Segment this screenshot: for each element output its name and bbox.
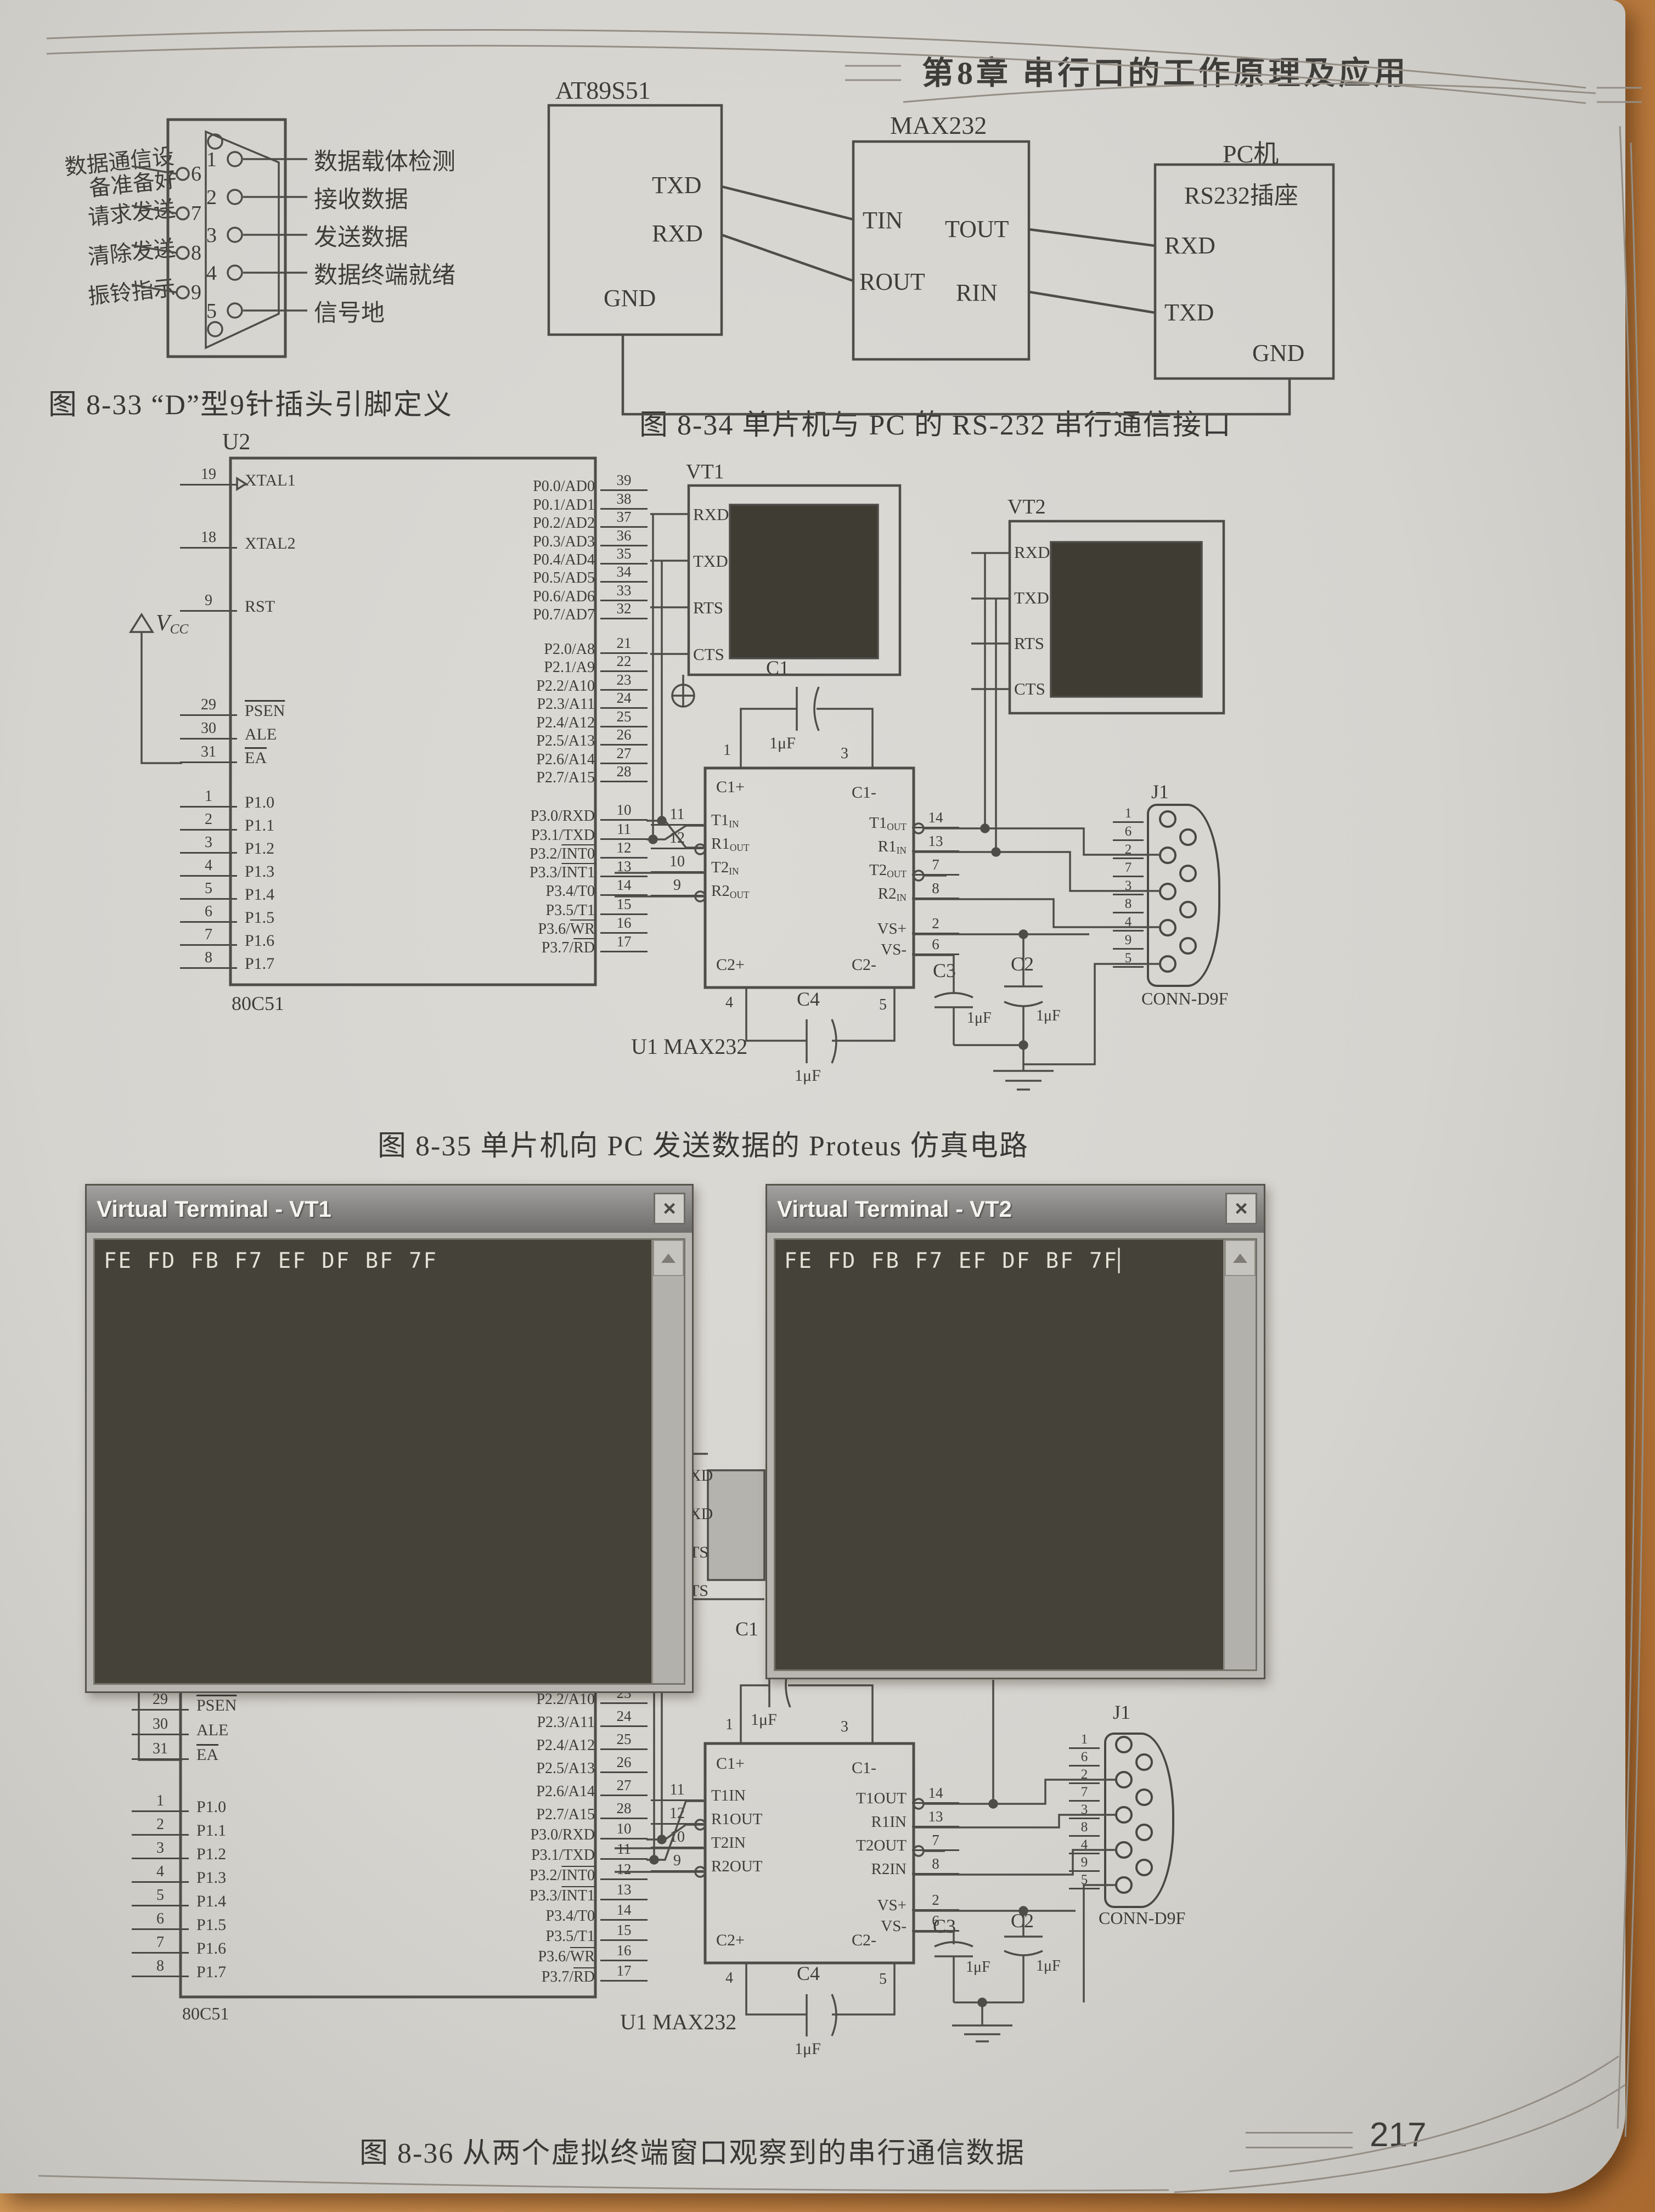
pin-row: 29PSEN [180, 692, 378, 716]
pin-row: P0.0/AD039 [370, 473, 648, 491]
db9-pin-number: 3 [206, 216, 217, 254]
j1-pin-hole [1115, 1736, 1133, 1753]
pin-row: P0.6/AD633 [370, 583, 648, 601]
c2-value: 1μF [1036, 1007, 1061, 1025]
pin-row: P0.1/AD138 [370, 491, 648, 509]
j1-pin-hole [1179, 901, 1197, 918]
vt1-window: Virtual Terminal - VT1 × FE FD FB F7 EF … [85, 1184, 694, 1693]
vt1-terminal-text: FE FD FB F7 EF DF BF 7F [104, 1249, 438, 1273]
terminal-pin: CTS [693, 631, 729, 678]
pin-row: 8P1.7 [180, 946, 378, 969]
vt2-close-button[interactable]: × [1225, 1193, 1257, 1224]
pin-row: P3.2/INT012 [370, 1860, 648, 1880]
terminal-pin: TXD [693, 538, 729, 584]
db9-pin-number: 5 [206, 292, 217, 330]
vt1-ref: VT1 [686, 460, 724, 484]
j1-pin-hole [1159, 810, 1176, 828]
pin-row: 19XTAL1 [180, 422, 378, 486]
pin-row: P3.3/INT113 [370, 1880, 648, 1900]
pin-row: VS-6 [768, 934, 959, 955]
pc-txd-pin: TXD [1164, 298, 1214, 326]
pin-row: P3.7/RD17 [370, 1961, 648, 1982]
vt1-scrollbar[interactable] [651, 1240, 684, 1683]
terminal-pin: RXD [1014, 529, 1050, 575]
db9-right-label-row: 接收数据 [314, 178, 455, 216]
pin-row: 9R2OUT [651, 873, 788, 896]
pin-row: P2.2/A1023 [370, 672, 648, 691]
vt2-terminal-cursor: ▏ [1118, 1249, 1133, 1273]
pin-row: P3.4/T014 [370, 1900, 648, 1921]
fig836-caption: 图 8-36 从两个虚拟终端窗口观察到的串行通信数据 [359, 2130, 1025, 2171]
pin-row: 5P1.4 [132, 1883, 329, 1906]
u1-ref: U1 MAX232 [631, 1034, 747, 1059]
chip2-p2-pins: P2.2/A1023P2.3/A1124P2.4/A1225P2.5/A1326… [370, 1681, 648, 1819]
c3-ref: C3 [933, 959, 956, 982]
pin-row: 10T2IN [651, 1825, 788, 1848]
pin-row: P0.4/AD435 [370, 546, 648, 565]
pin-row: P3.7/RD17 [370, 934, 648, 952]
chip2-part: 80C51 [182, 2004, 229, 2024]
c1b-pin1: 1 [725, 1716, 733, 1734]
u2-p1-pins: 1P1.02P1.13P1.24P1.35P1.46P1.57P1.68P1.7 [180, 785, 378, 969]
pin-row: P2.7/A1528 [370, 764, 648, 783]
j1-pins: 162738495 [1113, 810, 1197, 973]
pin-row: P0.2/AD237 [370, 510, 648, 528]
max232-rout-pin: ROUT [859, 268, 925, 296]
vt2-terminal-screen[interactable]: FE FD FB F7 EF DF BF 7F▏ [775, 1240, 1223, 1669]
pin-row: 1P1.0 [180, 785, 378, 808]
pin-row: 31EA [132, 1735, 329, 1760]
u2-topleft-pins: 19XTAL118XTAL29RST [180, 422, 378, 612]
u1b-c2minus: C2- [852, 1931, 876, 1950]
pin-row: P3.6/WR16 [370, 915, 648, 934]
db9-left-label-row: 清除发送 [11, 233, 176, 273]
u1-c1plus: C1+ [716, 778, 745, 797]
chip2-p3-pins: P3.0/RXD10P3.1/TXD11P3.2/INT012P3.3/INT1… [370, 1819, 648, 1982]
fig833-caption: 图 8-33 “D”型9针插头引脚定义 [48, 381, 453, 422]
u1b-vs-pins: VS+2VS-6 [768, 1890, 959, 1932]
u1b-c1plus: C1+ [716, 1754, 745, 1773]
vt1-scroll-up-arrow[interactable] [653, 1240, 684, 1276]
pin-row: P2.3/A1124 [370, 1704, 648, 1727]
c1-value: 1μF [769, 734, 796, 753]
j1b-part: CONN-D9F [1099, 1908, 1185, 1928]
pin-row: P3.1/TXD11 [370, 1839, 648, 1860]
db9-pin-number: 2 [206, 178, 217, 216]
c2b-value: 1μF [1036, 1957, 1061, 1975]
j1-pin-hole [1115, 1771, 1133, 1788]
db9-right-labels: 数据载体检测接收数据发送数据数据终端就绪信号地 [314, 140, 455, 330]
pin-row: 11T1IN [651, 802, 788, 826]
vt2-scroll-up-arrow[interactable] [1225, 1240, 1256, 1276]
c4b-value: 1μF [795, 2040, 821, 2058]
db9-left-label-row: 振铃指示 [11, 273, 176, 312]
pin-row: R1IN13 [768, 828, 959, 852]
pin-row: 10T2IN [651, 849, 788, 873]
pin-row: P2.4/A1225 [370, 709, 648, 727]
c4b-ref: C4 [797, 1962, 820, 1985]
book-page: 第8章 串行口的工作原理及应用 数据通信设备准备好请求发送清除发送振铃指示 67… [0, 0, 1625, 2193]
db9-pin-number: 4 [206, 254, 217, 292]
vt2-terminal-text: FE FD FB F7 EF DF BF 7F [784, 1249, 1118, 1273]
c4-value: 1μF [795, 1066, 821, 1085]
pin-row: T2OUT7 [768, 1827, 959, 1851]
pin-row: 8P1.7 [132, 1954, 329, 1977]
pin-row: 3P1.2 [132, 1836, 329, 1859]
c1b-value: 1μF [751, 1711, 777, 1729]
vt2-pins: RXDTXDRTSCTS [1014, 529, 1050, 712]
vt2-titlebar[interactable]: Virtual Terminal - VT2 × [767, 1186, 1264, 1233]
c1b-pin3: 3 [841, 1718, 848, 1736]
u2-p3-pins: P3.0/RXD10P3.1/TXD11P3.2/INT012P3.3/INT1… [370, 802, 648, 952]
db9-pin-number: 8 [191, 233, 201, 273]
u1b-pin4: 4 [725, 1970, 733, 1987]
terminal-pin: TXD [1014, 575, 1050, 620]
c1-pin3: 3 [841, 745, 848, 763]
u1-left-pins: 11T1IN12R1OUT10T2IN9R2OUT [651, 802, 788, 896]
book-photo: 第8章 串行口的工作原理及应用 数据通信设备准备好请求发送清除发送振铃指示 67… [0, 0, 1655, 2212]
c2-ref: C2 [1011, 952, 1034, 975]
j1-pin-hole [1115, 1876, 1133, 1894]
j1-pin-hole [1159, 919, 1176, 936]
chapter-header: 第8章 串行口的工作原理及应用 [922, 47, 1409, 93]
pin-row: 3P1.2 [180, 831, 378, 854]
u1b-left-pins: 11T1IN12R1OUT10T2IN9R2OUT [651, 1778, 788, 1872]
u2-ctrl-pins: 29PSEN30ALE31EA [180, 692, 378, 763]
pin-row: P0.7/AD732 [370, 601, 648, 619]
max232-rin-pin: RIN [956, 279, 998, 307]
pin-row: 1P1.0 [132, 1788, 329, 1812]
j1-ref: J1 [1151, 780, 1169, 803]
j1-pin-hole [1115, 1841, 1133, 1859]
pin-row: P0.3/AD336 [370, 528, 648, 546]
u1b-ref: U1 MAX232 [620, 2009, 736, 2035]
db9-left-labels: 数据通信设备准备好请求发送清除发送振铃指示 [11, 154, 176, 312]
pin-row: T2OUT7 [768, 852, 959, 876]
terminal-pin: CTS [1014, 666, 1050, 712]
pin-row: P3.2/INT012 [370, 840, 648, 859]
c1-ref: C1 [766, 656, 789, 679]
db9-right-label-row: 发送数据 [314, 216, 455, 254]
pin-row: VS-6 [768, 1911, 959, 1932]
pc-rxd-pin: RXD [1164, 232, 1215, 259]
pin-row: P2.6/A1427 [370, 1773, 648, 1796]
vt2-scrollbar[interactable] [1223, 1240, 1256, 1669]
j1-pin-hole [1135, 1859, 1153, 1876]
u1-c1minus: C1- [852, 783, 876, 802]
pin-row: 5P1.4 [180, 877, 378, 900]
db9-left-numbers: 6789 [191, 154, 201, 312]
fig834-caption: 图 8-34 单片机与 PC 的 RS-232 串行通信接口 [639, 402, 1232, 443]
u1b-c1minus: C1- [852, 1759, 876, 1778]
j1-pin-hole [1135, 1824, 1153, 1841]
u2-part: 80C51 [232, 992, 284, 1015]
vt2-window: Virtual Terminal - VT2 × FE FD FB F7 EF … [765, 1184, 1265, 1679]
pin-row: 12R1OUT [651, 1801, 788, 1825]
pin-row: 7P1.6 [180, 923, 378, 946]
db9-right-label-row: 数据终端就绪 [314, 254, 455, 292]
j1-pin-row: 5 [1113, 955, 1197, 973]
pin-row: P2.5/A1326 [370, 1750, 648, 1773]
c3-value: 1μF [967, 1009, 992, 1027]
pin-row: P2.5/A1326 [370, 727, 648, 746]
pin-row: R1IN13 [768, 1804, 959, 1827]
pin-row: 4P1.3 [132, 1859, 329, 1883]
pin-row: P3.5/T115 [370, 1921, 648, 1941]
pin-row: 18XTAL2 [180, 486, 378, 549]
j1-pin-hole [1159, 955, 1176, 973]
chip2-p1-pins: 1P1.02P1.13P1.24P1.35P1.46P1.57P1.68P1.7 [132, 1788, 329, 1977]
pin-row: P3.1/TXD11 [370, 821, 648, 839]
pin-row: P3.3/INT113 [370, 859, 648, 877]
u1-vs-pins: VS+2VS-6 [768, 913, 959, 955]
pin-row: 31EA [180, 740, 378, 763]
pin-row: 30ALE [180, 716, 378, 740]
c4-ref: C4 [797, 988, 820, 1011]
vt1-titlebar[interactable]: Virtual Terminal - VT1 × [87, 1186, 692, 1233]
mcu-rxd-pin: RXD [652, 219, 703, 247]
j1-pin-row: 5 [1069, 1876, 1153, 1894]
c3b-ref: C3 [933, 1915, 956, 1938]
max232-box-title: MAX232 [890, 111, 987, 140]
pin-row: P2.1/A922 [370, 654, 648, 673]
page-number: 217 [1370, 2115, 1426, 2154]
pc-box-title: PC机 [1223, 134, 1279, 170]
pin-row: 4P1.3 [180, 854, 378, 877]
mcu-txd-pin: TXD [652, 171, 701, 199]
vt1-close-button[interactable]: × [654, 1193, 685, 1224]
j1-pin-hole [1135, 1753, 1153, 1771]
page-number-rule [1246, 2147, 1353, 2148]
j1-pin-hole [1115, 1806, 1133, 1824]
pin-row: 12R1OUT [651, 826, 788, 849]
pin-row: P3.0/RXD10 [370, 1819, 648, 1839]
pin-row: 6P1.5 [180, 900, 378, 923]
pin-row: R2IN8 [768, 1851, 959, 1875]
j1-pin-hole [1159, 847, 1176, 864]
pin-row: P3.5/T115 [370, 896, 648, 915]
pin-row: VS+2 [768, 913, 959, 934]
pin-row: P2.4/A1225 [370, 1727, 648, 1750]
chip2-ctrl-pins: 29PSEN30ALE31EA [132, 1686, 329, 1760]
pin-row: 11T1IN [651, 1778, 788, 1801]
terminal-pin: RXD [693, 491, 729, 538]
vt2-ref: VT2 [1007, 495, 1046, 519]
pin-row: P0.5/AD534 [370, 565, 648, 583]
pin-row: 9RST [180, 549, 378, 612]
mcu-gnd-pin: GND [604, 284, 656, 312]
pin-row: P2.0/A821 [370, 635, 648, 654]
pin-row: T1OUT14 [768, 1780, 959, 1804]
pin-row: P2.3/A1124 [370, 691, 648, 709]
db9-pin-number: 6 [191, 154, 201, 194]
u1-pin5: 5 [879, 996, 887, 1014]
pc-gnd-pin: GND [1252, 339, 1304, 367]
db9-pin-number: 9 [191, 273, 201, 312]
max232-tout-pin: TOUT [945, 215, 1009, 243]
vt2-window-title: Virtual Terminal - VT2 [767, 1196, 1012, 1222]
terminal-pin: RTS [1014, 620, 1050, 666]
db9-pin-number: 7 [191, 194, 201, 233]
pin-row: P3.4/T014 [370, 877, 648, 896]
j1-pin-hole [1135, 1788, 1153, 1806]
vt1-terminal-screen[interactable]: FE FD FB F7 EF DF BF 7F [95, 1240, 651, 1683]
vt1-pins: RXDTXDRTSCTS [693, 491, 729, 678]
db9-right-label-row: 信号地 [314, 292, 455, 330]
pin-row: 2P1.1 [180, 808, 378, 831]
pin-row: P2.6/A1427 [370, 746, 648, 764]
terminal-pin: RTS [693, 584, 729, 631]
c3b-value: 1μF [966, 1959, 990, 1976]
u1b-pin5: 5 [879, 1971, 887, 1988]
pin-row: 7P1.6 [132, 1930, 329, 1954]
j1-part: CONN-D9F [1141, 989, 1228, 1009]
pc-rs232-socket: RS232插座 [1184, 176, 1298, 211]
vcc-label: VCC [156, 610, 188, 637]
pin-row: R2IN8 [768, 876, 959, 899]
mcu-box-title: AT89S51 [555, 76, 651, 105]
pin-row: VS+2 [768, 1890, 959, 1911]
c1-pin1: 1 [723, 742, 731, 759]
vt1-window-title: Virtual Terminal - VT1 [87, 1196, 331, 1222]
u1-c2minus: C2- [852, 956, 876, 974]
u1b-right-pins: T1OUT14R1IN13T2OUT7R2IN8 [768, 1780, 959, 1875]
j1-pin-hole [1159, 883, 1176, 900]
j1b-ref: J1 [1113, 1701, 1130, 1724]
fig835-caption: 图 8-35 单片机向 PC 发送数据的 Proteus 仿真电路 [378, 1122, 1029, 1164]
u1-right-pins: T1OUT14R1IN13T2OUT7R2IN8 [768, 805, 959, 899]
db9-right-label-row: 数据载体检测 [314, 140, 455, 178]
pin-row: P3.0/RXD10 [370, 802, 648, 821]
db9-pin-number: 1 [206, 140, 217, 178]
pin-row: 6P1.5 [132, 1906, 329, 1930]
pin-row: T1OUT14 [768, 805, 959, 828]
c1b-ref: C1 [735, 1617, 758, 1640]
max232-tin-pin: TIN [863, 206, 903, 234]
j1b-pins: 162738495 [1069, 1736, 1153, 1894]
j1-pin-hole [1179, 865, 1197, 882]
page-number-rule [1246, 2132, 1353, 2134]
pin-row: 30ALE [132, 1711, 329, 1735]
db9-right-numbers: 12345 [206, 140, 217, 330]
c2b-ref: C2 [1011, 1909, 1034, 1932]
u1b-c2plus: C2+ [716, 1931, 745, 1950]
pin-row: 2P1.1 [132, 1812, 329, 1836]
j1-pin-hole [1179, 828, 1197, 846]
pin-row: P2.7/A1528 [370, 1796, 648, 1819]
u2-p2-pins: P2.0/A821P2.1/A922P2.2/A1023P2.3/A1124P2… [370, 635, 648, 782]
db9-left-label-row: 数据通信设备准备好 [11, 154, 176, 194]
u2-p0-pins: P0.0/AD039P0.1/AD138P0.2/AD237P0.3/AD336… [370, 473, 648, 619]
u1-pin4: 4 [725, 994, 733, 1012]
u1-c2plus: C2+ [716, 956, 745, 974]
pin-row: P3.6/WR16 [370, 1941, 648, 1961]
j1-pin-hole [1179, 937, 1197, 955]
pin-row: 9R2OUT [651, 1848, 788, 1872]
